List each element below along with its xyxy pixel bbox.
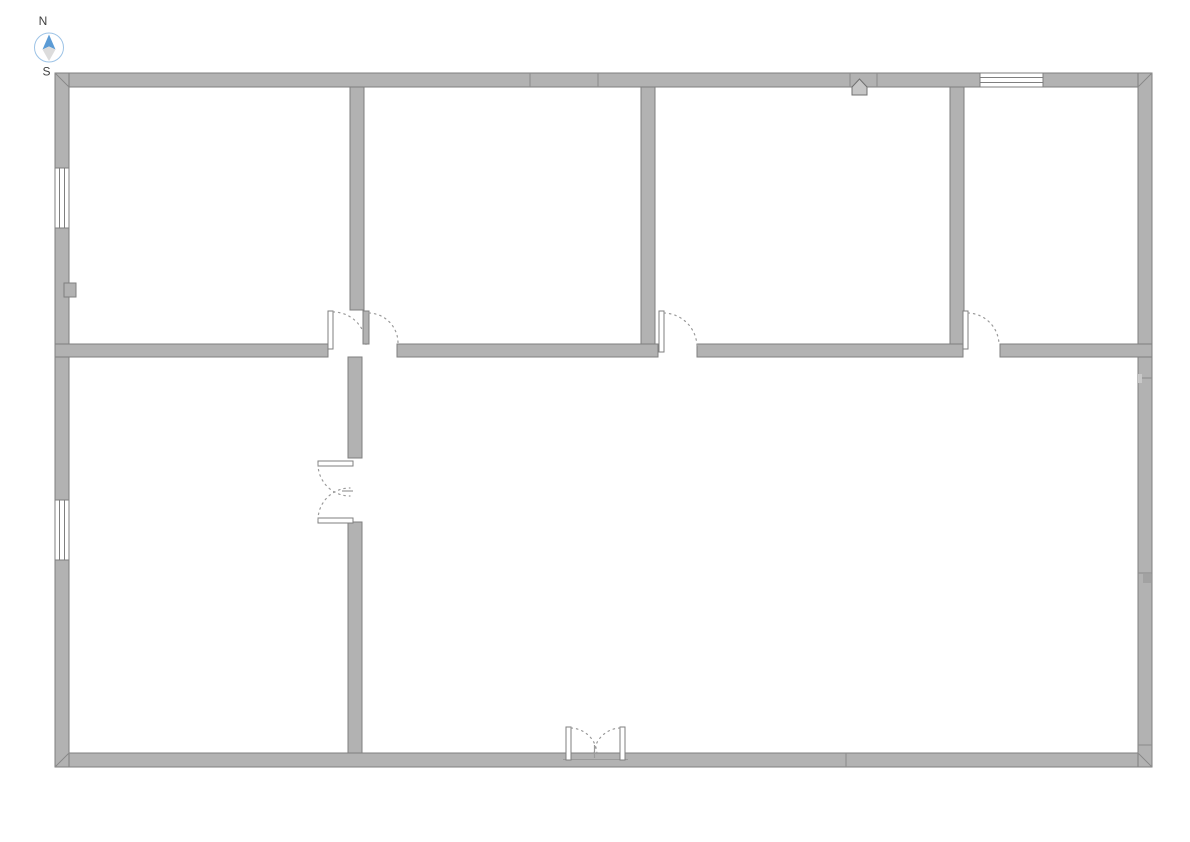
wall-middle-seg-1 xyxy=(55,344,328,357)
window-west-lower xyxy=(55,500,69,560)
door-leaf-right xyxy=(620,727,625,760)
door-leaf-left xyxy=(566,727,571,760)
window-north-right xyxy=(980,73,1043,87)
door-leaf-lower xyxy=(318,518,353,523)
door-swing-arc xyxy=(369,313,398,343)
wall-partition-top-1 xyxy=(350,87,364,310)
door-swing-arc xyxy=(571,728,597,755)
wall-seams xyxy=(530,73,1152,767)
seam-east-notch-2 xyxy=(1143,574,1151,583)
door-swing-arc xyxy=(968,313,999,345)
door-leaf xyxy=(363,311,369,344)
compass-south-label: S xyxy=(42,65,50,79)
wall-middle-seg-4 xyxy=(1000,344,1152,357)
window-west-upper xyxy=(55,168,69,228)
compass-north-label: N xyxy=(39,14,48,28)
compass-rose: N S xyxy=(35,14,64,79)
wall-partition-bottom-upper xyxy=(348,357,362,458)
fixtures xyxy=(64,79,867,297)
floor-plan-drawing: N S xyxy=(0,0,1190,842)
door-leaf-upper xyxy=(318,461,353,466)
door-top-room-3 xyxy=(659,311,697,352)
window-frame xyxy=(55,500,69,560)
floor-plan-canvas: N S xyxy=(0,0,1190,842)
wall-east xyxy=(1138,73,1152,767)
window-frame xyxy=(980,73,1043,87)
door-swing-arc xyxy=(333,312,366,345)
wall-middle-seg-3 xyxy=(697,344,963,357)
interior-walls xyxy=(55,87,1152,753)
wall-partition-top-2 xyxy=(641,87,655,344)
door-swing-arc xyxy=(318,488,350,520)
door-top-room-4 xyxy=(963,311,999,349)
seam-east-notch-1 xyxy=(1138,374,1142,383)
door-swing-arc xyxy=(664,313,697,347)
windows xyxy=(55,73,1043,560)
door-leaf xyxy=(659,311,664,352)
door-top-room-1 xyxy=(328,311,366,349)
wall-partition-bottom-lower xyxy=(348,522,362,753)
double-door-interior xyxy=(318,461,353,523)
wall-middle-seg-2 xyxy=(397,344,658,357)
wall-partition-top-3 xyxy=(950,87,964,344)
door-leaf xyxy=(328,311,333,349)
west-wall-outlet-icon xyxy=(64,283,76,297)
door-swing-arc xyxy=(594,728,620,755)
door-leaf xyxy=(963,311,968,349)
exterior-walls xyxy=(55,73,1152,767)
window-frame xyxy=(55,168,69,228)
door-top-room-2 xyxy=(363,311,398,344)
